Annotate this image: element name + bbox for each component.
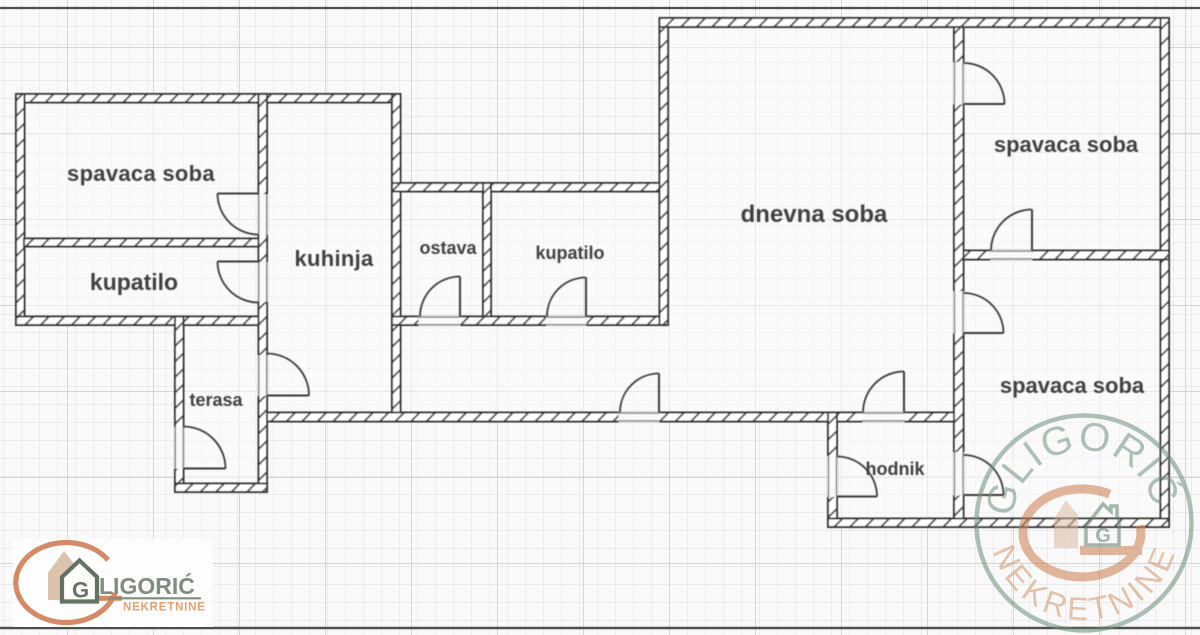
svg-text:spavaca soba: spavaca soba xyxy=(1000,373,1145,398)
svg-text:kupatilo: kupatilo xyxy=(90,269,178,295)
svg-text:kupatilo: kupatilo xyxy=(535,243,604,263)
svg-text:terasa: terasa xyxy=(189,390,243,410)
svg-text:spavaca soba: spavaca soba xyxy=(994,132,1139,157)
svg-text:kuhinja: kuhinja xyxy=(294,246,374,271)
svg-text:spavaca soba: spavaca soba xyxy=(67,161,215,186)
svg-text:ostava: ostava xyxy=(419,238,477,258)
svg-text:G: G xyxy=(1095,525,1111,547)
svg-text:G: G xyxy=(72,578,89,603)
svg-text:hodnik: hodnik xyxy=(866,459,926,479)
svg-text:LIGORIĆ: LIGORIĆ xyxy=(99,572,195,599)
svg-text:dnevna soba: dnevna soba xyxy=(741,201,888,228)
svg-text:NEKRETNINE: NEKRETNINE xyxy=(123,602,206,614)
